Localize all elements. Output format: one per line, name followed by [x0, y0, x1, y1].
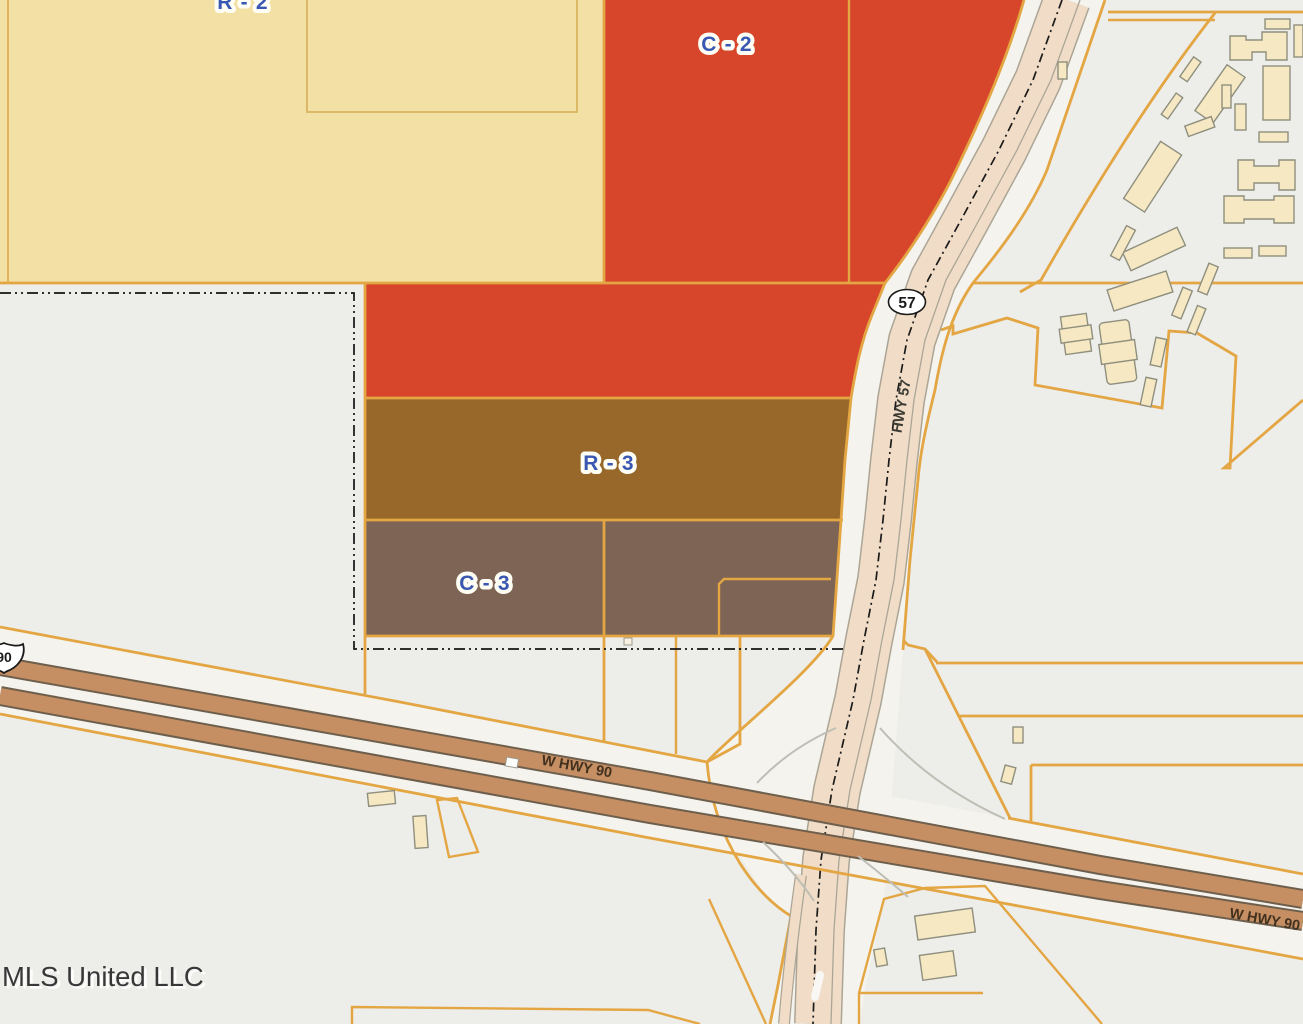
svg-text:R - 2: R - 2	[217, 0, 269, 14]
svg-text:MLS United LLC: MLS United LLC	[2, 961, 204, 992]
svg-text:C - 3: C - 3	[459, 572, 511, 595]
svg-text:90: 90	[0, 649, 12, 665]
svg-text:R - 3: R - 3	[583, 452, 635, 475]
svg-text:C - 2: C - 2	[701, 33, 753, 56]
svg-text:57: 57	[898, 295, 915, 312]
